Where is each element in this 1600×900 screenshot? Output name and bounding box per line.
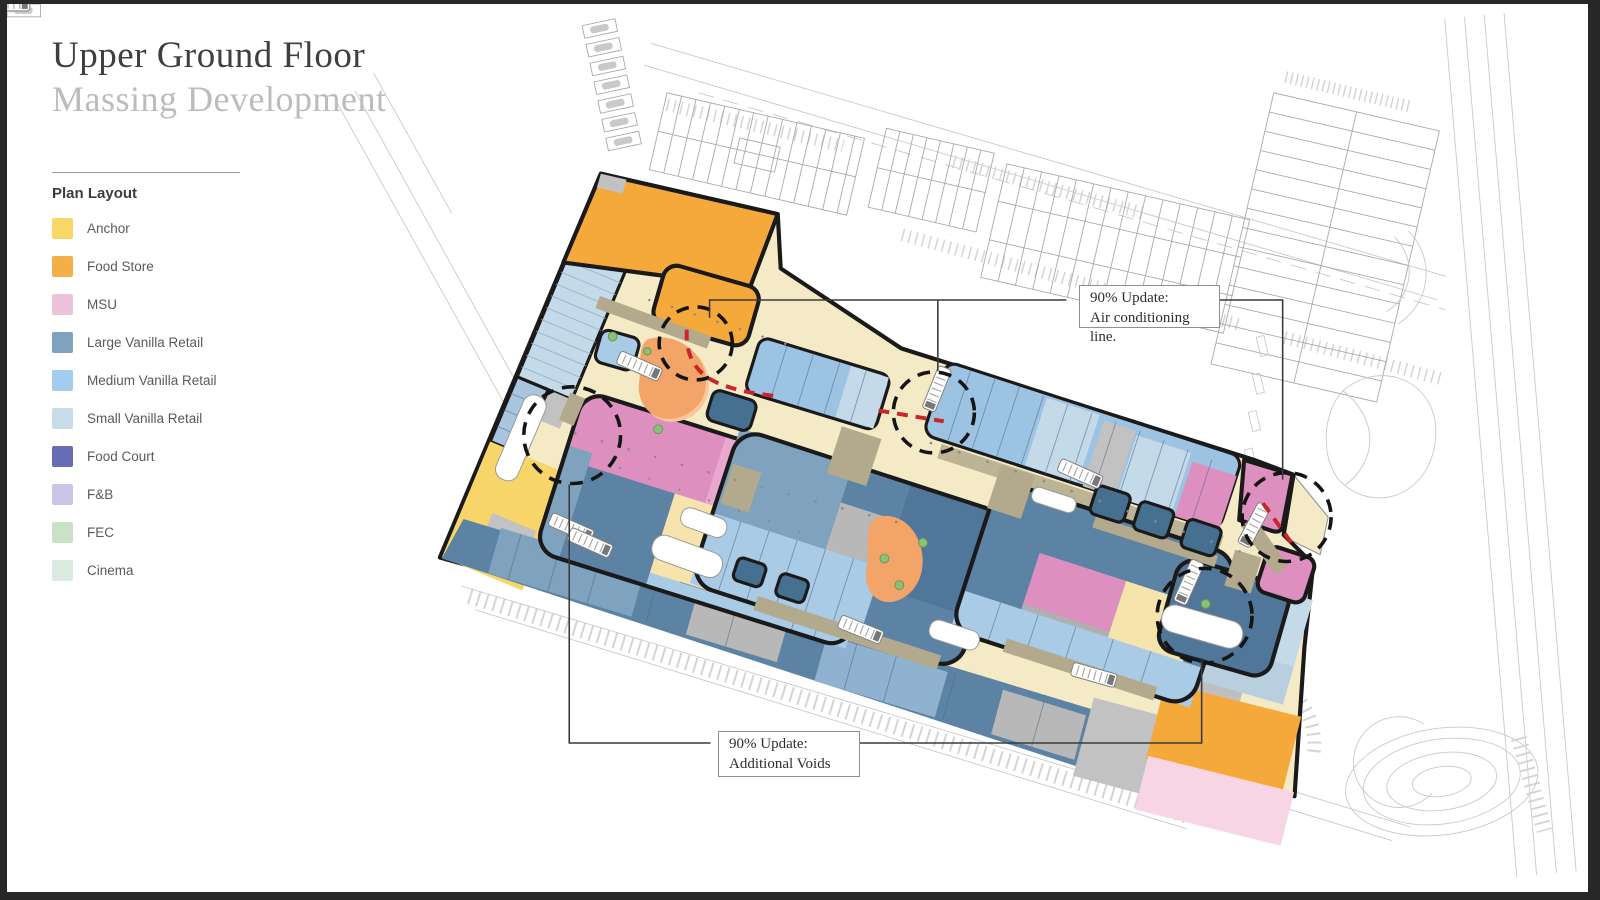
callout-line: Air conditioning line. (1090, 309, 1209, 348)
callout-line: 90% Update: (729, 735, 849, 755)
legend-item: Cinema (52, 560, 252, 581)
legend-swatch (52, 484, 73, 505)
legend-heading: Plan Layout (52, 185, 252, 202)
callout-line: Additional Voids (729, 755, 849, 775)
legend-swatch (52, 560, 73, 581)
callout-additional-voids: 90% Update: Additional Voids (718, 731, 860, 777)
page-subtitle: Massing Development (52, 78, 386, 120)
legend-swatch (52, 256, 73, 277)
cad-building-2 (868, 128, 994, 232)
legend-item: Large Vanilla Retail (52, 332, 252, 353)
legend-swatch (52, 294, 73, 315)
legend-item: Anchor (52, 218, 252, 239)
legend-item: Food Store (52, 256, 252, 277)
legend-swatch (52, 370, 73, 391)
legend-swatch (52, 408, 73, 429)
legend-label: Anchor (87, 221, 130, 236)
title-block: Upper Ground Floor Massing Development (52, 34, 386, 120)
legend-label: F&B (87, 487, 113, 502)
page-frame: Upper Ground Floor Massing Development P… (0, 0, 1600, 900)
page-title: Upper Ground Floor (52, 34, 386, 78)
cad-building-4 (1211, 93, 1439, 402)
legend-label: Large Vanilla Retail (87, 335, 203, 350)
legend: Plan Layout AnchorFood StoreMSULarge Van… (52, 172, 252, 598)
legend-item: FEC (52, 522, 252, 543)
legend-swatch (52, 522, 73, 543)
legend-item: Food Court (52, 446, 252, 467)
legend-label: MSU (87, 297, 117, 312)
legend-item: MSU (52, 294, 252, 315)
callout-air-conditioning: 90% Update: Air conditioning line. (1079, 285, 1220, 328)
legend-label: Small Vanilla Retail (87, 411, 202, 426)
legend-swatch (52, 218, 73, 239)
legend-label: Medium Vanilla Retail (87, 373, 217, 388)
legend-item: Small Vanilla Retail (52, 408, 252, 429)
legend-label: Food Court (87, 449, 155, 464)
legend-label: FEC (87, 525, 114, 540)
legend-label: Food Store (87, 259, 154, 274)
callout-line: 90% Update: (1090, 289, 1209, 309)
legend-items: AnchorFood StoreMSULarge Vanilla RetailM… (52, 218, 252, 581)
legend-swatch (52, 446, 73, 467)
legend-item: Medium Vanilla Retail (52, 370, 252, 391)
legend-label: Cinema (87, 563, 134, 578)
legend-swatch (52, 332, 73, 353)
legend-item: F&B (52, 484, 252, 505)
legend-divider (52, 172, 240, 173)
